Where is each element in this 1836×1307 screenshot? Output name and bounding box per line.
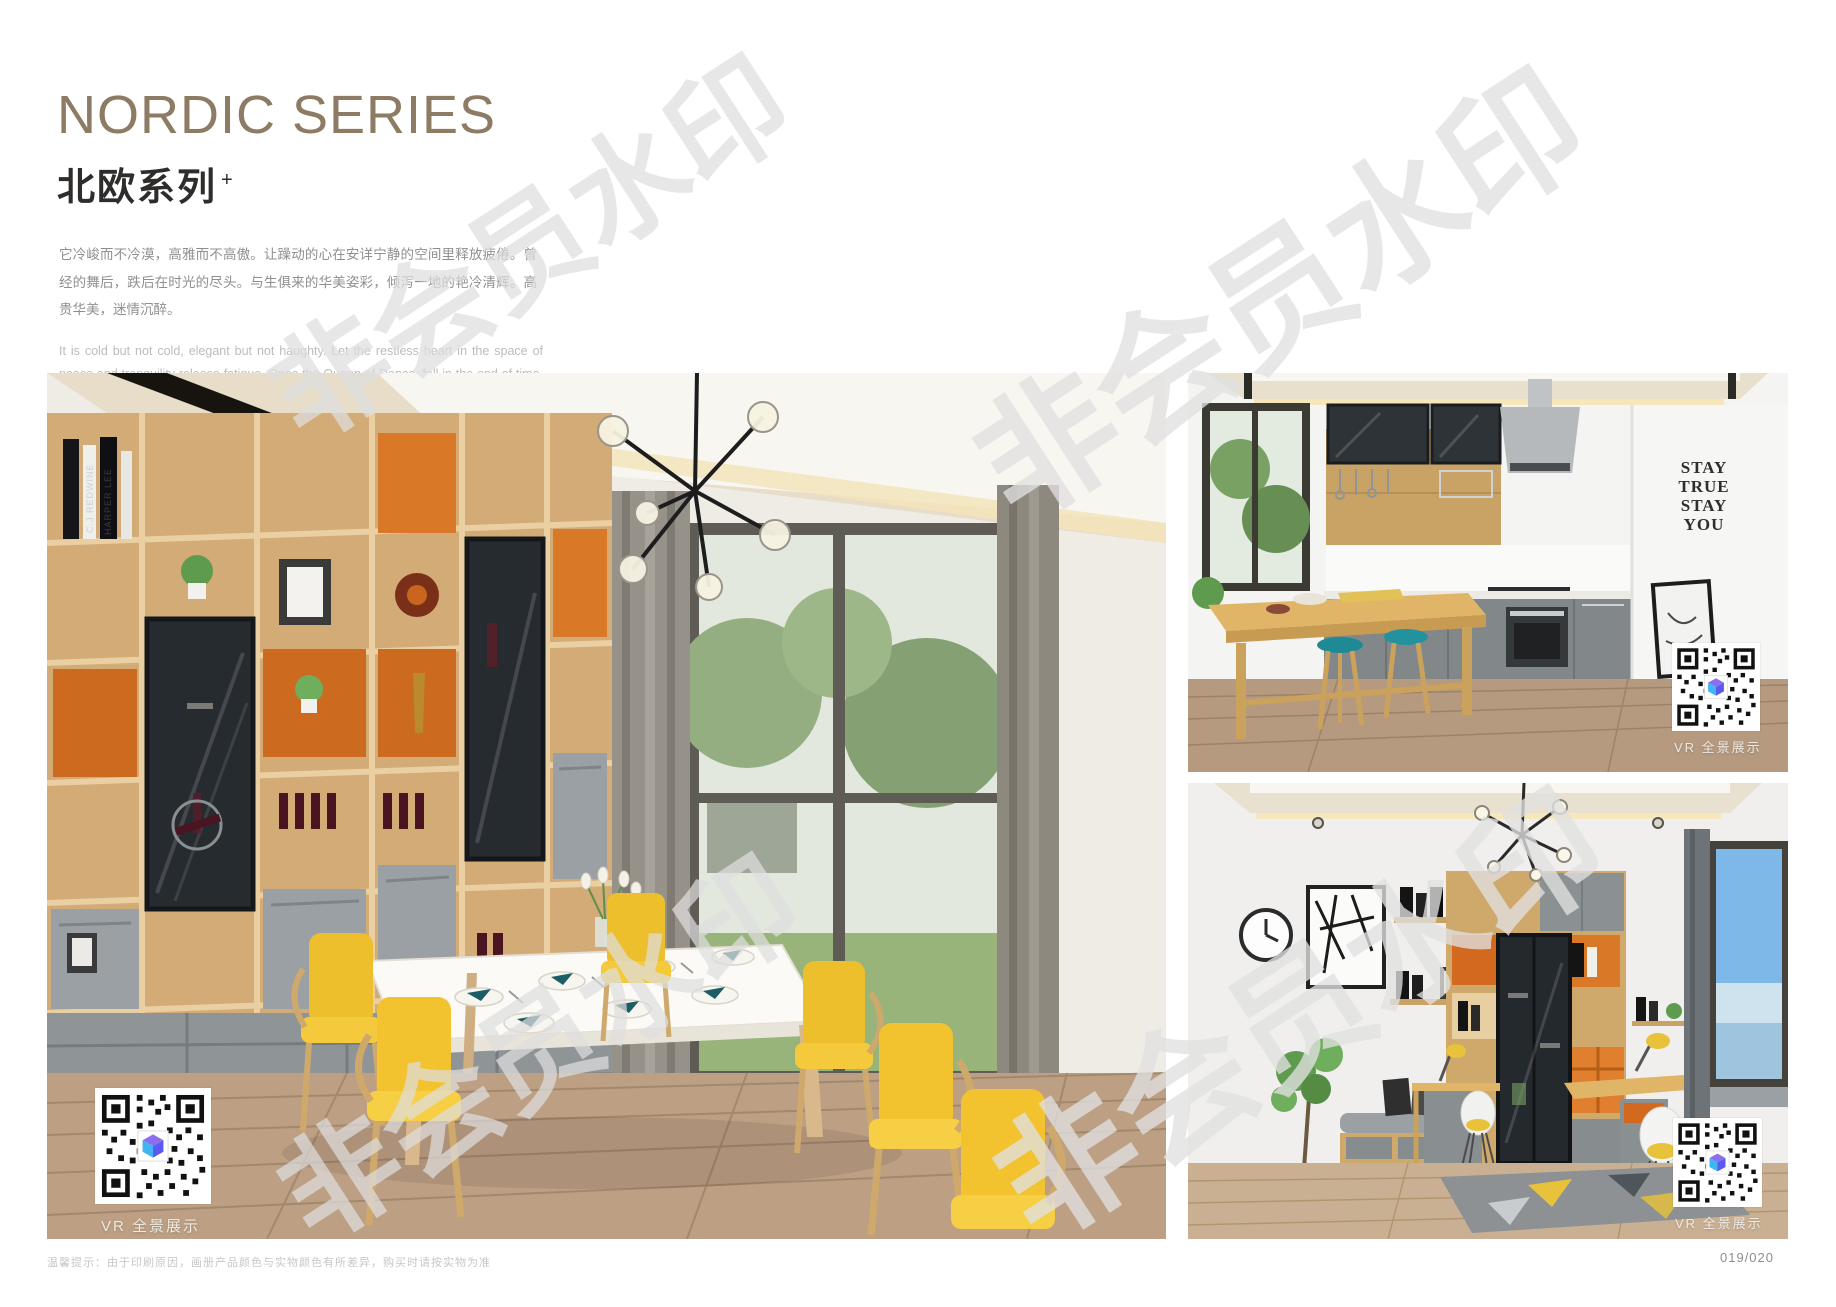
series-title-en: NORDIC SERIES xyxy=(57,84,617,146)
plant xyxy=(1192,577,1224,609)
catalog-page: NORDIC SERIES 北欧系列+ 它冷峻而不冷漠，高雅而不高傲。让躁动的心… xyxy=(0,0,1836,1307)
series-title-plus: + xyxy=(221,169,235,191)
wall-decal-line: TRUE xyxy=(1678,477,1729,496)
window xyxy=(1708,841,1788,1107)
orange-cubby xyxy=(53,669,137,777)
dining-room-scene: C.J REDWINE HARPER LEE xyxy=(47,373,1166,1239)
spotlight xyxy=(1313,818,1323,828)
backsplash xyxy=(1326,545,1630,593)
qr-code xyxy=(95,1088,211,1204)
qr-code xyxy=(1672,643,1760,731)
wall-clock xyxy=(1241,910,1291,960)
orange-cubby xyxy=(553,529,607,637)
yellow-chair xyxy=(951,1089,1062,1229)
upper-cabinets xyxy=(1326,405,1501,545)
qr-code xyxy=(1673,1118,1762,1207)
dining-room-photo: C.J REDWINE HARPER LEE xyxy=(47,373,1166,1239)
wall-decal-line: STAY xyxy=(1681,496,1728,515)
wall-decal-line: STAY xyxy=(1681,458,1728,477)
plate xyxy=(1266,604,1290,614)
page-number: 019/020 xyxy=(1720,1250,1774,1265)
abstract-art xyxy=(1308,887,1384,987)
bowl xyxy=(1293,593,1327,605)
glass-cabinet xyxy=(467,539,543,859)
vr-panorama-label: VR 全景展示 xyxy=(1674,737,1762,756)
book-spine-text: C.J REDWINE xyxy=(85,464,95,534)
wall-decal-line: YOU xyxy=(1684,515,1725,534)
vr-panorama-label: VR 全景展示 xyxy=(1675,1213,1763,1232)
series-title-cn: 北欧系列+ xyxy=(57,156,617,211)
wall-decal: STAY TRUE STAY YOU xyxy=(1678,458,1729,534)
book-spine-text: HARPER LEE xyxy=(103,468,113,535)
window xyxy=(1202,403,1310,591)
curtain xyxy=(1684,829,1710,1145)
glass-doors xyxy=(1498,935,1570,1163)
study-photo: VR 全景展示 xyxy=(1188,783,1788,1239)
print-disclaimer: 温馨提示：由于印刷原因，画册产品颜色与实物颜色有所差异，购买时请按实物为准 xyxy=(47,1254,491,1270)
orange-cubby xyxy=(378,433,456,533)
spotlight xyxy=(1653,818,1663,828)
vr-panorama-label: VR 全景展示 xyxy=(101,1215,200,1236)
glass-cabinet xyxy=(147,619,253,909)
kitchen-photo: STAY TRUE STAY YOU xyxy=(1188,373,1788,772)
statue xyxy=(413,673,425,733)
series-title-cn-text: 北欧系列 xyxy=(57,167,217,209)
window-seat xyxy=(1708,1087,1788,1107)
intro-paragraph-cn: 它冷峻而不冷漠，高雅而不高傲。让躁动的心在安详宁静的空间里释放疲倦。曾经的舞后，… xyxy=(59,241,537,324)
